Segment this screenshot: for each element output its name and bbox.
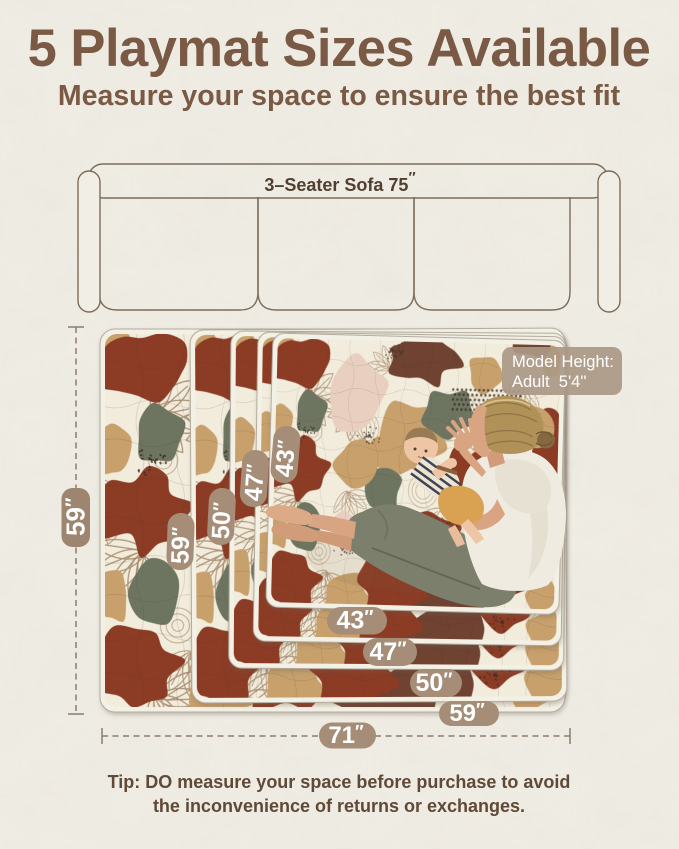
svg-text:the inconvenience of returns o: the inconvenience of returns or exchange… — [153, 796, 525, 816]
svg-text:Adult 5'4'': Adult 5'4'' — [512, 373, 587, 391]
svg-text:Tip: DO measure your space bef: Tip: DO measure your space before purcha… — [108, 772, 571, 792]
svg-text:Measure your space to ensure t: Measure your space to ensure the best fi… — [58, 80, 621, 112]
svg-text:5 Playmat Sizes Available: 5 Playmat Sizes Available — [28, 19, 651, 78]
svg-text:Model Height:: Model Height: — [512, 353, 614, 371]
